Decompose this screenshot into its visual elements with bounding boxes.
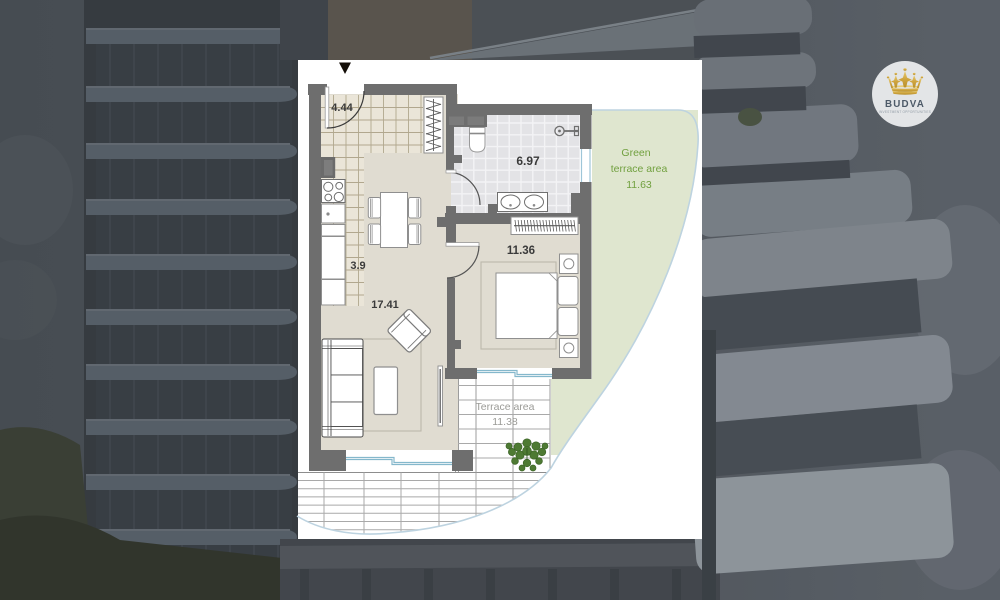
svg-text:11.63: 11.63: [626, 179, 652, 191]
svg-text:11.38: 11.38: [492, 416, 518, 428]
svg-text:3.9: 3.9: [350, 260, 365, 272]
svg-text:11.36: 11.36: [507, 245, 535, 257]
svg-text:4.44: 4.44: [331, 102, 353, 114]
svg-text:BUDVA: BUDVA: [885, 99, 925, 110]
svg-text:17.41: 17.41: [371, 299, 399, 311]
svg-text:Terrace area: Terrace area: [476, 401, 535, 413]
svg-text:INVESTMENT OPPORTUNITIES: INVESTMENT OPPORTUNITIES: [879, 110, 931, 114]
svg-text:Green: Green: [621, 147, 650, 159]
svg-text:terrace area: terrace area: [611, 163, 668, 175]
svg-text:6.97: 6.97: [516, 154, 540, 168]
